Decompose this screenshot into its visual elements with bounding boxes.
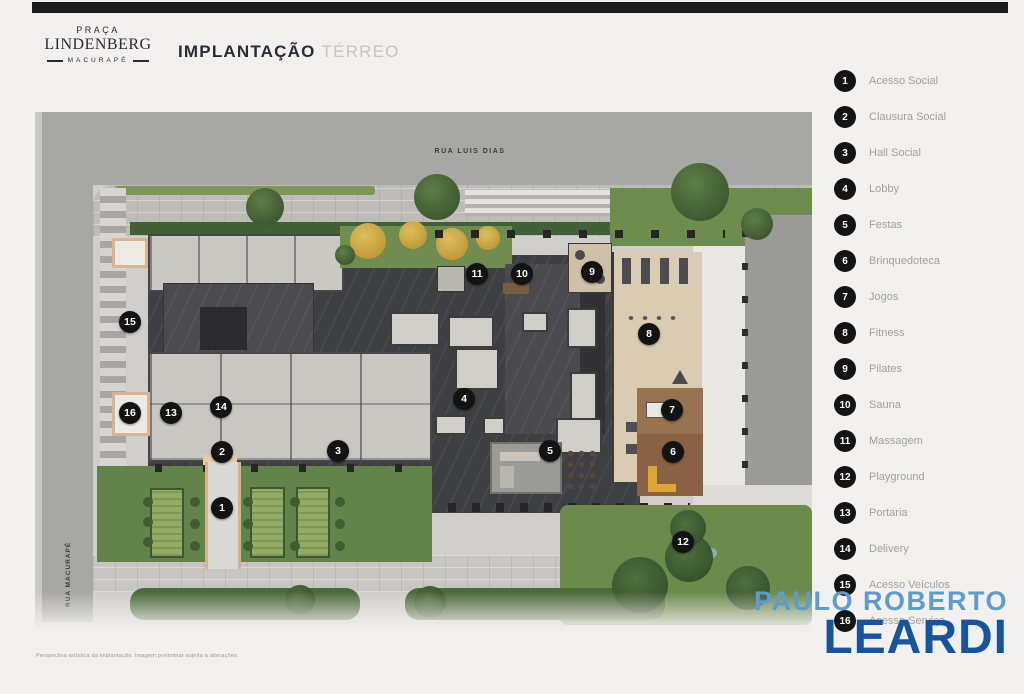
legend-label: Pilates: [869, 363, 902, 375]
garden-shrubs: [143, 497, 153, 507]
yellow-tree: [350, 223, 386, 259]
top-black-bar: [32, 2, 1008, 13]
fence-posts-garden: [155, 464, 405, 472]
pilates-equipment: [595, 274, 605, 284]
logo-line-macurape: MACURAPÉ: [68, 57, 129, 64]
legend-label: Portaria: [869, 507, 908, 519]
rooms-portaria-delivery: [148, 352, 432, 462]
legend-number-badge: 6: [834, 250, 856, 272]
legend-item: 10Sauna: [834, 394, 950, 416]
legend-item: 2Clausura Social: [834, 106, 950, 128]
legend-item: 5Festas: [834, 214, 950, 236]
street-tree: [246, 188, 284, 226]
game-table: [646, 402, 670, 418]
brand-logo: PRAÇA LINDENBERG MACURAPÉ: [38, 25, 158, 64]
street-label-top: RUA LUIS DIAS: [395, 148, 545, 155]
legend-number-badge: 14: [834, 538, 856, 560]
page-title-bold: IMPLANTAÇÃO: [178, 42, 316, 61]
legend-number-badge: 10: [834, 394, 856, 416]
legend-item: 3Hall Social: [834, 142, 950, 164]
legend-label: Sauna: [869, 399, 901, 411]
legend-label: Lobby: [869, 183, 899, 195]
legend-label: Delivery: [869, 543, 909, 555]
legend-number-badge: 3: [834, 142, 856, 164]
core-room: [435, 415, 467, 435]
legend-label: Jogos: [869, 291, 898, 303]
legend-label: Fitness: [869, 327, 904, 339]
legend: 1Acesso Social2Clausura Social3Hall Soci…: [834, 70, 950, 632]
legend-number-badge: 9: [834, 358, 856, 380]
yellow-sofa: [648, 484, 676, 492]
entry-walkway: [205, 462, 241, 569]
logo-dash-right: [133, 60, 149, 62]
road-left-curb: [35, 112, 42, 622]
street-tree: [671, 163, 729, 221]
broker-watermark: PAULO ROBERTO LEARDI: [754, 589, 1008, 660]
pilates-equipment: [575, 250, 585, 260]
logo-line-praca: PRAÇA: [38, 25, 158, 35]
festas-island: [500, 466, 514, 488]
brinquedoteca-room: [637, 434, 703, 496]
colonnade-north: [435, 230, 725, 238]
legend-number-badge: 5: [834, 214, 856, 236]
roof-block-west-dark: [200, 307, 247, 350]
treadmill-row: [622, 258, 696, 284]
yellow-tree: [399, 221, 427, 249]
legend-number-badge: 2: [834, 106, 856, 128]
grass-strip-top: [115, 186, 375, 195]
sauna-room: [437, 266, 465, 292]
column-row-yard-edge: [742, 230, 748, 490]
jogos-room: [637, 388, 703, 434]
site-plan: RUA LUIS DIAS RUA MACURAPÉ: [35, 112, 812, 640]
driveway-right: [745, 215, 812, 485]
legend-number-badge: 4: [834, 178, 856, 200]
legend-item: 8Fitness: [834, 322, 950, 344]
legend-label: Acesso Social: [869, 75, 938, 87]
legend-item: 1Acesso Social: [834, 70, 950, 92]
legend-label: Massagem: [869, 435, 923, 447]
legend-label: Brinquedoteca: [869, 255, 940, 267]
legend-item: 6Brinquedoteca: [834, 250, 950, 272]
legend-label: Playground: [869, 471, 925, 483]
disclaimer-text: Perspectiva artística da implantação. Im…: [36, 653, 239, 659]
watermark-name-bottom: LEARDI: [754, 615, 1008, 661]
gym-triangle-rig: [672, 370, 688, 384]
festas-pavilion: [490, 442, 562, 494]
core-room: [567, 308, 597, 348]
legend-label: Clausura Social: [869, 111, 946, 123]
road-left: [35, 112, 93, 622]
planting-bed: [296, 487, 330, 558]
vehicle-entrance-pad: [112, 238, 148, 268]
gym-equipment-dots: [624, 312, 684, 324]
core-room: [448, 316, 494, 348]
core-room: [390, 312, 440, 346]
logo-dash-left: [47, 60, 63, 62]
legend-item: 9Pilates: [834, 358, 950, 380]
legend-item: 12Playground: [834, 466, 950, 488]
page-title: IMPLANTAÇÃOTÉRREO: [178, 42, 400, 62]
festas-counter: [500, 452, 540, 461]
core-room: [483, 417, 505, 435]
legend-number-badge: 12: [834, 466, 856, 488]
planting-bed: [250, 487, 285, 558]
courtyard-tree: [335, 245, 355, 265]
logo-line-macurape-row: MACURAPÉ: [38, 57, 158, 64]
legend-label: Hall Social: [869, 147, 921, 159]
page-title-light: TÉRREO: [322, 42, 400, 61]
legend-number-badge: 1: [834, 70, 856, 92]
legend-number-badge: 7: [834, 286, 856, 308]
legend-item: 13Portaria: [834, 502, 950, 524]
legend-item: 7Jogos: [834, 286, 950, 308]
brochure-page: PRAÇA LINDENBERG MACURAPÉ IMPLANTAÇÃOTÉR…: [0, 0, 1024, 694]
legend-number-badge: 8: [834, 322, 856, 344]
logo-line-lindenberg: LINDENBERG: [38, 36, 158, 54]
pilates-area: [568, 243, 612, 293]
legend-number-badge: 11: [834, 430, 856, 452]
legend-item: 14Delivery: [834, 538, 950, 560]
street-tree: [741, 208, 773, 240]
service-entrance-pad: [112, 392, 150, 436]
tree: [670, 510, 706, 546]
legend-number-badge: 13: [834, 502, 856, 524]
planting-bed: [150, 488, 184, 558]
legend-item: 4Lobby: [834, 178, 950, 200]
street-tree: [414, 174, 460, 220]
core-room: [455, 348, 499, 390]
sauna-bench: [503, 283, 529, 294]
core-room: [522, 312, 548, 332]
legend-label: Festas: [869, 219, 902, 231]
legend-item: 11Massagem: [834, 430, 950, 452]
festas-seating: [565, 448, 599, 492]
plan-bottom-fade: [35, 592, 812, 640]
